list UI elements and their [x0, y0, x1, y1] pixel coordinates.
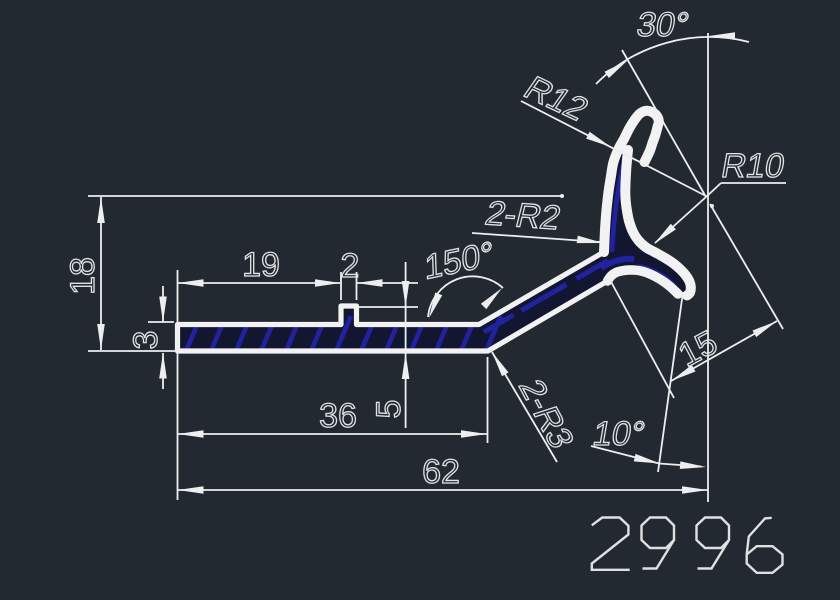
svg-text:5: 5 — [370, 400, 408, 419]
svg-text:2: 2 — [341, 247, 360, 285]
svg-text:18: 18 — [64, 257, 102, 295]
svg-text:2-R2: 2-R2 — [482, 195, 565, 237]
svg-text:R10: R10 — [718, 147, 787, 185]
svg-text:19: 19 — [242, 246, 280, 284]
svg-text:62: 62 — [422, 453, 460, 491]
svg-text:36: 36 — [319, 397, 357, 435]
svg-text:3: 3 — [127, 331, 165, 350]
svg-text:30°: 30° — [634, 6, 692, 44]
svg-text:10°: 10° — [590, 415, 648, 453]
